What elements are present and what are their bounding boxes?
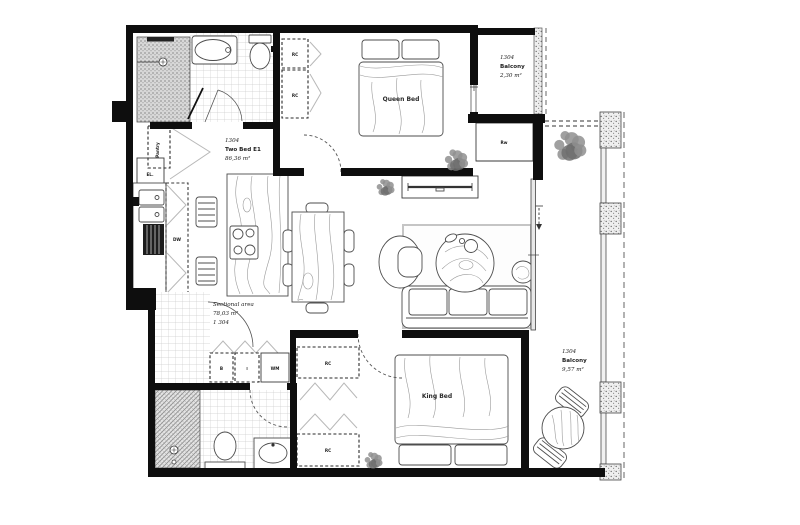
balcony-top-area: 2,30 m² [499,72,523,79]
electrical-label: EL. [146,172,154,177]
queen-closet-lower-label: RC [292,93,298,98]
living-room [379,176,543,328]
shower-screen [147,37,174,42]
washing-machine-label: WM [271,366,280,371]
bistro-set [531,384,591,470]
drain-rack [143,224,164,255]
hanging-rail-icon [212,341,278,353]
cabinet-swing-1 [167,185,186,225]
window-mark [470,83,478,114]
bathtub [192,36,237,64]
closet-rail-icon-1 [310,42,321,66]
plant-living-left [377,179,395,196]
dining-area [283,203,354,313]
sectional-title: Sectional area [213,302,254,308]
faucet-icon [133,197,139,206]
shower-bottom [155,390,200,468]
plant-bedroom-king [365,452,383,469]
bar-stools [196,197,217,285]
bedroom-king: RC RC King Bed [297,334,509,466]
balcony-top-number: 1304 [500,55,515,61]
king-bed-label: King Bed [422,393,452,400]
closet-rail-icon-3 [300,383,357,400]
cabinet-swing-2 [167,253,186,293]
balustrade-block [534,28,542,114]
balustrade-block [600,203,621,234]
queen-closet-upper-label: RC [292,52,298,57]
closet-rail-icon-4 [300,414,357,430]
entry-door-swing [170,127,210,179]
balustrade-block [600,382,621,413]
tv-console [402,176,478,198]
unit-label: 1304 Two Bed E1 86,36 m² [225,138,261,162]
balcony-right-name: Balcony [562,358,587,364]
closet-room-label: Rw [500,140,507,145]
floor-plan-canvas: Pantry EL. 1304 Two Bed E1 86,36 m² DW [0,0,800,525]
bedroom-queen: RC RC Queen Bed [282,39,478,172]
pillow [362,40,399,59]
kitchen: DW [133,174,288,296]
laundry-unit-1-label: B [220,366,223,371]
dishwasher-label: DW [173,237,181,242]
sectional-label: Sectional area 78,03 m² 1 304 [213,302,254,326]
king-bed: King Bed [395,355,509,465]
queen-bed: Queen Bed [359,40,443,136]
plant-balcony-top [554,131,586,161]
pillow [399,445,451,465]
unit-number: 1304 [225,138,240,144]
balcony-right: 1304 Balcony 9,57 m² [531,112,624,480]
bathroom-bottom [155,390,292,469]
balustrade-glass [601,148,606,203]
decor-ball [459,238,464,243]
laundry-row: B ⁝ WM [210,341,289,382]
balcony-top-name: Balcony [500,64,525,70]
balcony-top-label: 1304 Balcony 2,30 m² [499,55,525,79]
unit-area: 86,36 m² [225,155,251,162]
bathroom-top [137,33,276,122]
balcony-right-label: 1304 Balcony 9,57 m² [562,349,587,373]
unit-type: Two Bed E1 [225,147,261,153]
sectional-number: 1 304 [213,320,229,326]
outdoor-table [542,407,584,449]
vanity-sink [254,438,292,469]
closet-rail-icon-2 [310,74,321,112]
balcony-right-area: 9,57 m² [562,366,585,373]
queen-bed-label: Queen Bed [383,96,420,103]
balustrade-glass [601,413,606,464]
pillow [455,445,507,465]
shower-top [137,37,190,122]
armchair [379,236,422,288]
closet-room: Rw [476,123,533,161]
balustrade-block [600,112,621,148]
plant-living-right [445,149,468,170]
decor-bowl [465,240,478,253]
balcony-right-number: 1304 [562,349,577,355]
kitchen-island [227,174,288,296]
pantry-label: Pantry [155,142,160,158]
balustrade-glass [601,234,606,382]
pillow [402,40,439,59]
king-closet-upper-label: RC [325,361,331,366]
floor-plan: Pantry EL. 1304 Two Bed E1 86,36 m² DW [0,0,800,525]
king-closet-lower-label: RC [325,448,331,453]
cooktop [230,226,258,259]
sectional-area: 78,03 m² [213,310,239,317]
balcony-door-arrow [535,206,543,230]
balcony-top-right: 1304 Balcony 2,30 m² [499,28,546,114]
dining-table [292,212,344,302]
balcony-top-edge [545,121,601,126]
queen-door-swing [304,135,341,172]
hall-tiles-lower [155,308,210,383]
